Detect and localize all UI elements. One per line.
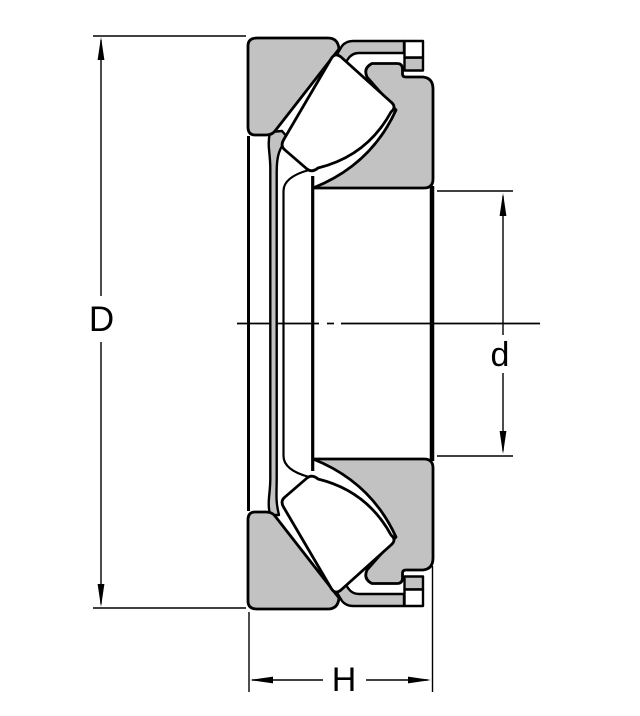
- arrowhead-up-icon: [98, 37, 105, 60]
- bearing-section-diagram: D d H: [0, 0, 640, 716]
- bearing-drawing-page: D d H: [0, 0, 640, 716]
- height-label: H: [332, 661, 357, 699]
- arrowhead-down-icon: [98, 584, 105, 607]
- arrowhead-down-icon: [500, 431, 507, 454]
- cage-rivet-head-top: [405, 41, 424, 58]
- arrowhead-right-icon: [408, 677, 431, 684]
- cage-rivet-head-bottom: [405, 590, 424, 607]
- dimension-D: D: [89, 36, 246, 608]
- cage-rivet-gray-bottom: [405, 577, 424, 590]
- cage-rivet-gray-top: [405, 58, 424, 71]
- bore-diameter-label: d: [491, 336, 510, 374]
- arrowhead-left-icon: [250, 677, 273, 684]
- arrowhead-up-icon: [500, 193, 507, 216]
- outer-diameter-label: D: [89, 300, 114, 339]
